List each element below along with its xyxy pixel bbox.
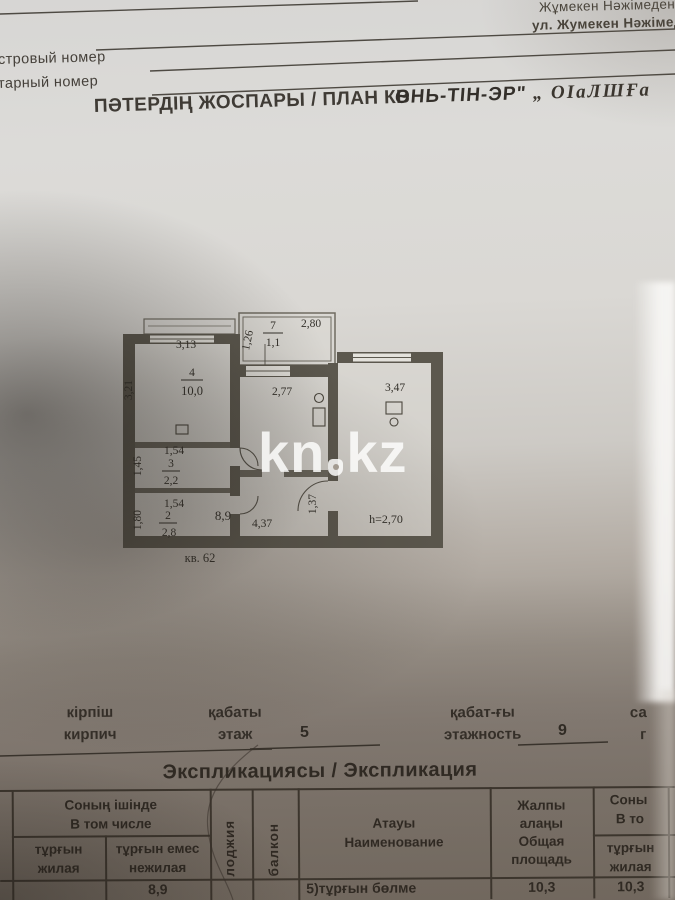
storeys-label-ru: этажность: [415, 723, 550, 746]
total-ru2: площадь: [490, 850, 593, 869]
year-field-fragment: са г: [630, 702, 675, 746]
floor-plan: 3,13 3,21 4 10,0 1,26 7 1,1 2,80 2,77 3,…: [110, 296, 470, 566]
col-balcony: балкон: [266, 800, 281, 876]
col-including: Соның ішінде В том числе: [14, 795, 208, 834]
explication-table: Соның ішінде В том числе тұрғын жилая тұ…: [0, 786, 675, 900]
including-ru: В том числе: [14, 814, 208, 834]
dim-label: 3,47: [385, 382, 405, 394]
year-fragment-ru: г: [630, 724, 675, 746]
col-name: Атауы Наименование: [298, 813, 490, 852]
wall-material-kk: кірпіш: [30, 701, 150, 724]
page-title: ПӘТЕРДІҢ ЖОСПАРЫ / ПЛАН КВѲНЬ-ТІН-ЭР"„ О…: [94, 78, 675, 118]
wall-material-ru: кирпич: [30, 723, 150, 746]
dim-label: 2,77: [272, 386, 292, 398]
dim-label: 1,54: [164, 445, 184, 457]
room-number: 2: [165, 510, 171, 522]
floor-label-kk: қабаты: [180, 701, 290, 724]
col-living: тұрғын жилая: [12, 839, 105, 878]
nonliving-ru: нежилая: [105, 858, 210, 878]
room-area: 10,0: [181, 384, 203, 398]
dim-label: 1,37: [307, 494, 319, 514]
right-living-ru: жилая: [593, 857, 668, 876]
wall-material-field: кірпіш кирпич: [30, 701, 150, 746]
floor-field: қабаты этаж: [180, 701, 290, 746]
col-nonliving: тұрғын емес нежилая: [105, 839, 210, 878]
storeys-field: қабат-ғы этажность: [415, 701, 550, 746]
dim-label: 3,13: [176, 339, 196, 351]
address-line-1: Жұмекен Нәжімедено: [539, 0, 675, 15]
col-total-area: Жалпы алаңы Общая площадь: [490, 796, 593, 869]
col-right-living: тұрғын жилая: [593, 838, 668, 876]
dim-label: 1,45: [132, 456, 144, 476]
storeys-value: 9: [558, 722, 567, 740]
total-kk1: Жалпы: [490, 796, 593, 815]
inventory-number-label: тарный номер: [0, 73, 98, 92]
dim-label: 1,54: [164, 498, 184, 510]
cadastral-number-label: стровый номер: [0, 49, 106, 68]
floor-value: 5: [300, 724, 309, 742]
room-area: 2,8: [162, 527, 177, 539]
including-kk: Соның ішінде: [14, 795, 208, 815]
apartment-number-label: кв. 62: [185, 551, 216, 565]
row-living-value: 10,3: [593, 878, 668, 894]
dim-label: 2,80: [301, 318, 321, 330]
name-ru: Наименование: [298, 832, 490, 852]
row-nonliving-value: 8,9: [105, 881, 210, 898]
name-kk: Атауы: [298, 813, 490, 833]
handwritten-overlay-text: „ ОІаЛШҒа: [532, 79, 651, 104]
row-name-value: 5)тұрғын бөлме: [306, 879, 490, 896]
dim-label: 3,21: [123, 380, 135, 400]
floor-label-ru: этаж: [180, 723, 290, 746]
total-ru1: Общая: [490, 832, 593, 851]
technical-passport-photo: Жұмекен Нәжімедено ул. Жумекен Нәжімед с…: [0, 0, 675, 900]
total-kk2: алаңы: [490, 814, 593, 833]
row-total-value: 10,3: [490, 878, 593, 895]
room-area: 1,1: [266, 337, 281, 349]
ceiling-height-label: h=2,70: [369, 512, 403, 526]
right-living-kk: тұрғын: [593, 838, 668, 857]
loggia-outline: [144, 319, 235, 334]
room-number: 4: [189, 367, 195, 379]
year-fragment-kk: са: [630, 702, 675, 724]
storeys-label-kk: қабат-ғы: [415, 701, 550, 724]
right-including-kk: Соны: [600, 790, 675, 809]
col-loggia: лоджия: [222, 801, 237, 877]
living-kk: тұрғын: [12, 839, 105, 859]
nonliving-kk: тұрғын емес: [105, 839, 210, 859]
page-title-main: ПӘТЕРДІҢ ЖОСПАРЫ / ПЛАН КВ: [94, 87, 411, 117]
stamp-overlay-text: ѲНЬ-ТІН-ЭР": [394, 83, 527, 109]
dim-label: 4,37: [252, 518, 272, 530]
dim-label: 1,80: [132, 510, 144, 530]
page-edge-highlight: [634, 282, 675, 702]
right-including-ru: В то: [600, 809, 675, 828]
room-area: 2,2: [164, 475, 179, 487]
room-number: 7: [270, 320, 276, 332]
explication-title: Экспликациясы / Экспликация: [110, 758, 530, 785]
living-ru: жилая: [12, 858, 105, 878]
address-line-2: ул. Жумекен Нәжімед: [532, 14, 675, 33]
room-area: 8,9: [215, 508, 231, 523]
room-number: 3: [168, 458, 174, 470]
col-right-including: Соны В то: [600, 790, 675, 828]
